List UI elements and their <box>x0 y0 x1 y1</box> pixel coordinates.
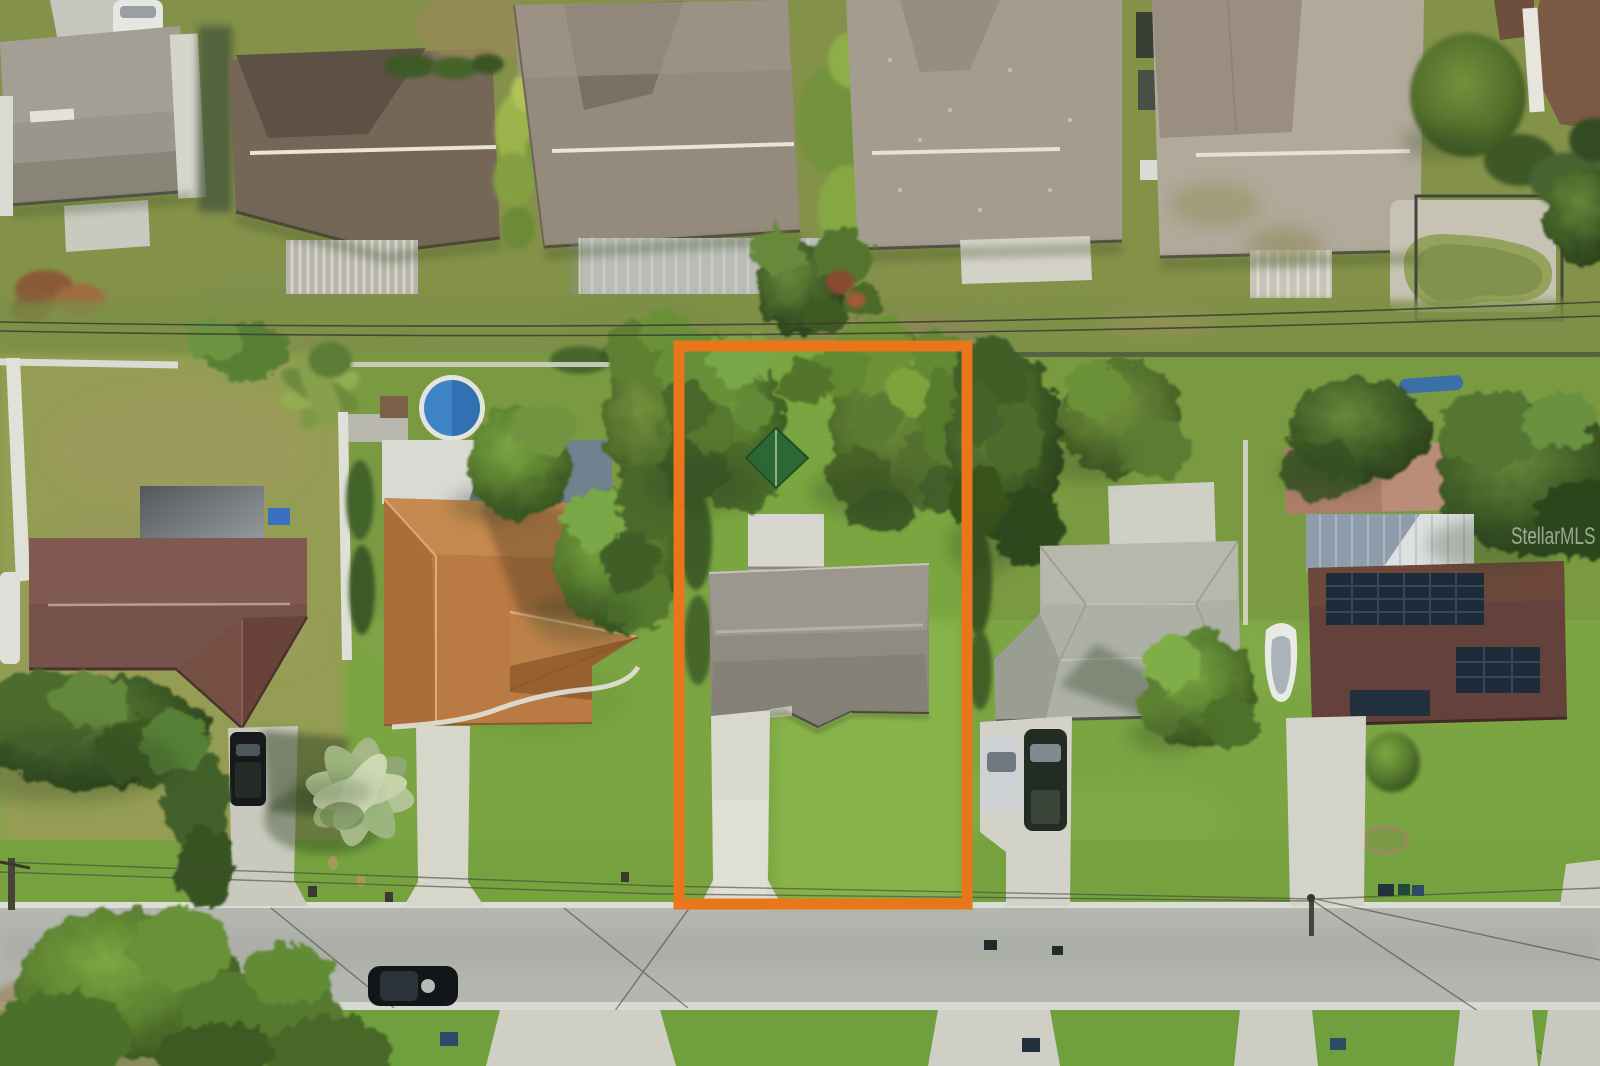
svg-text:StellarMLS: StellarMLS <box>1511 523 1595 549</box>
